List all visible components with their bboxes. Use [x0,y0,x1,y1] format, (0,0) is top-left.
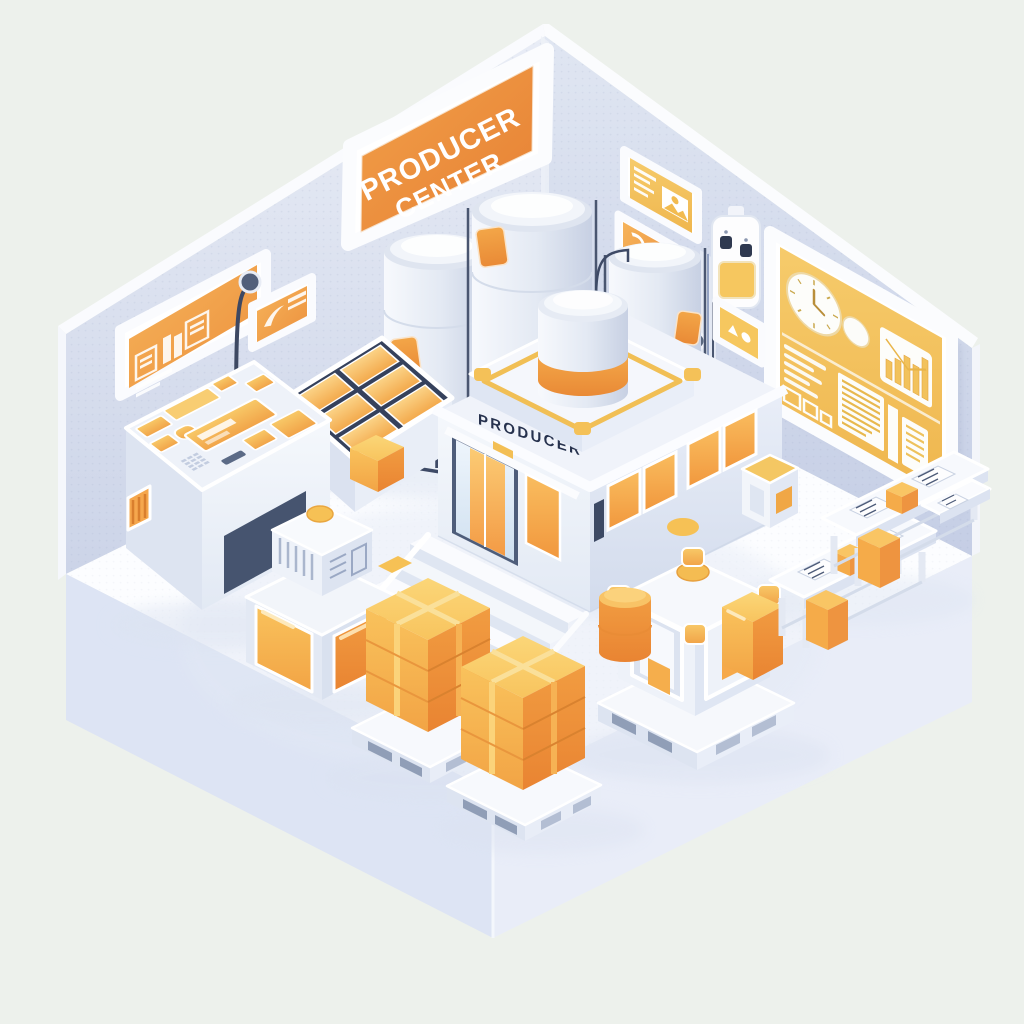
pallet-with-boxes-2 [447,636,601,841]
table-column-strip [888,404,898,464]
tank-label [475,226,508,268]
door-glow [470,448,505,556]
utility-cube [742,455,798,528]
supply-box [722,592,783,680]
producer-center-illustration: PRODUCER CENTER [0,0,1024,1024]
thermostat-button-1 [720,236,732,249]
thermostat-device [712,206,760,308]
bench-box-below [806,590,848,650]
left-wall-edge [58,326,66,580]
thermostat-button-2 [740,244,752,257]
right-wall-edge [972,344,980,556]
roof-cylinder [538,290,628,408]
side-door [594,499,604,542]
illustration-stage: PRODUCER CENTER [0,0,1024,1024]
crate-button [307,506,333,522]
pole-knob [240,272,260,292]
thermostat-screen [719,262,755,298]
supply-drum [599,588,651,663]
